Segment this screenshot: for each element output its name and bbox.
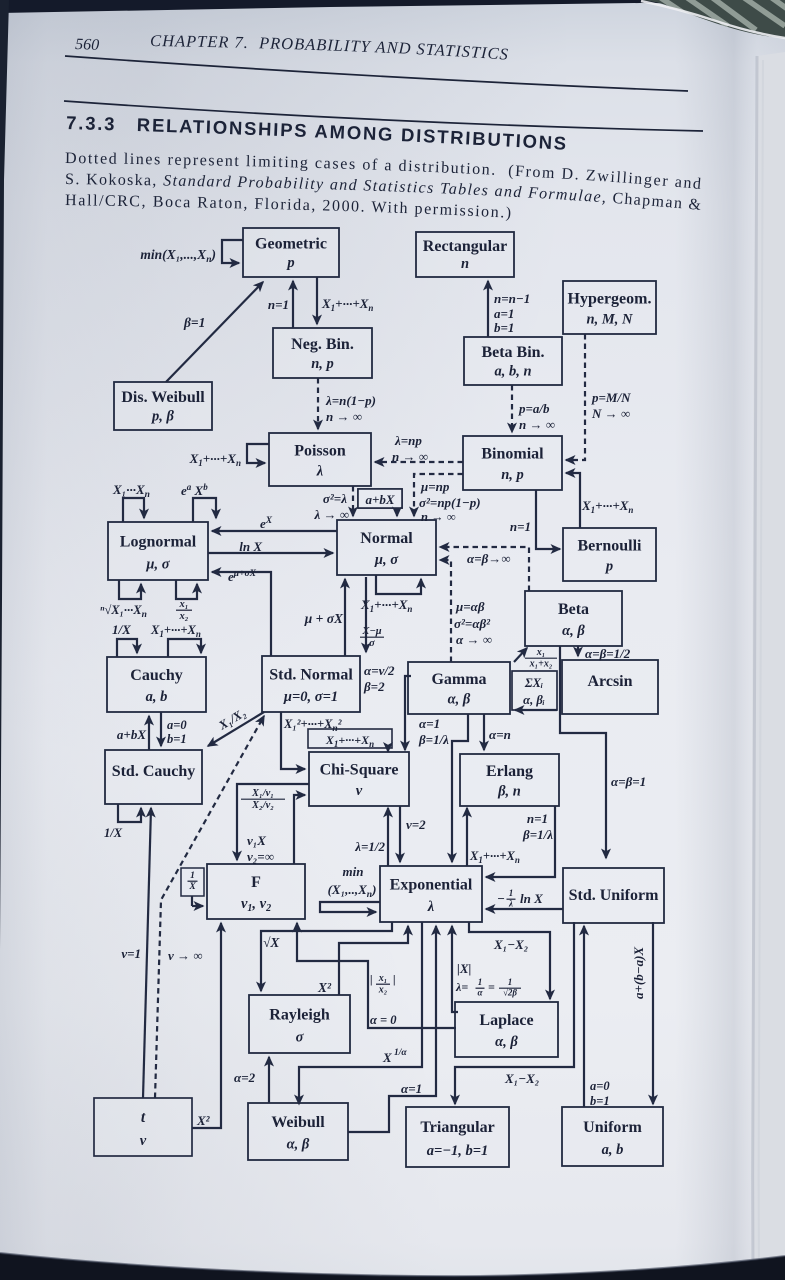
svg-text:β, n: β, n: [497, 784, 521, 800]
svg-text:α, β: α, β: [287, 1137, 310, 1153]
svg-text:|: |: [393, 972, 396, 986]
svg-text:n → ∞: n → ∞: [326, 409, 362, 424]
svg-text:|: |: [370, 972, 373, 986]
svg-text:ν=2: ν=2: [406, 817, 426, 832]
svg-text:p: p: [604, 558, 613, 574]
svg-text:Hypergeom.: Hypergeom.: [568, 290, 652, 307]
svg-text:X: X: [382, 1050, 392, 1065]
svg-text:−: −: [497, 891, 505, 906]
svg-text:μ, σ: μ, σ: [374, 552, 399, 568]
svg-text:X1+···+Xn: X1+···+Xn: [189, 451, 241, 468]
svg-text:μ=0, σ=1: μ=0, σ=1: [283, 689, 338, 705]
svg-text:a, b, n: a, b, n: [494, 363, 531, 379]
svg-text:Dis. Weibull: Dis. Weibull: [121, 389, 205, 406]
svg-text:μ, σ: μ, σ: [145, 556, 170, 572]
svg-text:x₁: x₁: [179, 599, 189, 610]
svg-text:Rectangular: Rectangular: [423, 238, 507, 255]
svg-text:X−μ: X−μ: [361, 626, 381, 637]
svg-text:ν: ν: [356, 783, 363, 799]
svg-text:n=1: n=1: [527, 811, 548, 826]
svg-text:n → ∞: n → ∞: [392, 449, 428, 464]
svg-text:μ + σX: μ + σX: [304, 611, 344, 626]
svg-text:b=1: b=1: [590, 1094, 610, 1108]
svg-text:√2β: √2β: [503, 988, 517, 998]
svg-text:σ²=αβ²: σ²=αβ²: [454, 616, 491, 631]
svg-text:b=1: b=1: [494, 320, 514, 335]
svg-text:Triangular: Triangular: [420, 1119, 494, 1136]
svg-text:ν=1: ν=1: [121, 946, 141, 961]
svg-text:X²: X²: [317, 980, 332, 995]
svg-text:α → ∞: α → ∞: [456, 632, 492, 647]
svg-text:1/X: 1/X: [104, 826, 123, 840]
svg-text:ν → ∞: ν → ∞: [168, 948, 203, 963]
svg-text:a+bX: a+bX: [365, 492, 394, 507]
svg-text:β=1: β=1: [183, 315, 205, 330]
svg-text:b=1: b=1: [167, 732, 187, 746]
svg-text:1: 1: [478, 977, 483, 987]
svg-text:Lognormal: Lognormal: [120, 533, 197, 550]
svg-text:n, p: n, p: [311, 356, 334, 372]
svg-text:ln X: ln X: [239, 539, 262, 554]
svg-text:X₁···Xn: X₁···Xn: [112, 482, 150, 500]
svg-text:μ=np: μ=np: [420, 479, 450, 494]
svg-text:X1+···+Xn: X1+···+Xn: [150, 623, 201, 639]
svg-text:a+(b−a)X: a+(b−a)X: [631, 947, 646, 999]
svg-text:α=n: α=n: [489, 727, 511, 742]
svg-text:X₁−X₂: X₁−X₂: [493, 937, 528, 952]
svg-text:ln X: ln X: [520, 891, 543, 906]
svg-text:α=β=1/2: α=β=1/2: [585, 646, 631, 661]
svg-text:ν₁X: ν₁X: [247, 833, 266, 848]
svg-text:n: n: [461, 256, 469, 272]
svg-text:σ²=np(1−p): σ²=np(1−p): [419, 495, 481, 510]
svg-text:F: F: [251, 874, 261, 891]
svg-text:Exponential: Exponential: [390, 877, 473, 894]
svg-text:1: 1: [190, 871, 195, 881]
svg-text:min(X₁,...,Xn): min(X₁,...,Xn): [140, 247, 216, 265]
svg-text:λ=1/2: λ=1/2: [354, 839, 385, 854]
svg-text:Std. Cauchy: Std. Cauchy: [112, 763, 196, 780]
svg-text:ΣXᵢ: ΣXᵢ: [524, 676, 543, 690]
svg-text:t: t: [141, 1109, 146, 1126]
svg-text:X1+···+Xn: X1+···+Xn: [321, 296, 373, 313]
svg-text:α=ν/2: α=ν/2: [364, 663, 395, 678]
svg-text:N → ∞: N → ∞: [591, 406, 630, 421]
svg-text:x₁: x₁: [536, 647, 546, 658]
svg-text:Binomial: Binomial: [481, 446, 544, 463]
svg-text:λ=np: λ=np: [394, 433, 422, 448]
svg-text:Cauchy: Cauchy: [130, 667, 182, 684]
svg-text:p=a/b: p=a/b: [518, 401, 550, 416]
svg-text:x₂: x₂: [378, 984, 388, 995]
svg-text:α, βᵢ: α, βᵢ: [523, 693, 545, 707]
svg-text:Laplace: Laplace: [479, 1012, 533, 1029]
svg-text:1/X: 1/X: [112, 622, 131, 637]
svg-text:Geometric: Geometric: [255, 236, 327, 253]
svg-text:α, β: α, β: [562, 623, 585, 639]
svg-text:β=2: β=2: [363, 679, 385, 694]
svg-text:X1+···+Xn: X1+···+Xn: [325, 733, 374, 749]
svg-text:Uniform: Uniform: [583, 1119, 642, 1136]
svg-text:min: min: [343, 864, 364, 879]
svg-text:α=1: α=1: [401, 1081, 422, 1096]
svg-text:Arcsin: Arcsin: [587, 673, 632, 690]
svg-text:a=−1, b=1: a=−1, b=1: [427, 1143, 489, 1159]
svg-text:a=0: a=0: [590, 1079, 610, 1093]
svg-text:n=1: n=1: [510, 519, 531, 534]
svg-text:Std. Uniform: Std. Uniform: [569, 887, 659, 904]
svg-text:μ=αβ: μ=αβ: [455, 599, 485, 614]
svg-text:n=n−1: n=n−1: [494, 291, 530, 306]
svg-text:Poisson: Poisson: [294, 442, 346, 459]
svg-text:X: X: [188, 882, 196, 892]
svg-text:Std. Normal: Std. Normal: [269, 667, 353, 684]
svg-text:n → ∞: n → ∞: [519, 417, 555, 432]
svg-text:X₁/ν₁: X₁/ν₁: [251, 788, 274, 799]
svg-text:λ: λ: [316, 463, 324, 479]
svg-text:1: 1: [508, 977, 513, 987]
svg-text:|X|: |X|: [457, 961, 471, 976]
svg-text:Bernoulli: Bernoulli: [577, 537, 642, 554]
svg-text:n → ∞: n → ∞: [421, 510, 456, 524]
svg-text:α=2: α=2: [234, 1070, 256, 1085]
svg-text:α = 0: α = 0: [370, 1013, 397, 1027]
svg-text:α=β=1: α=β=1: [611, 774, 646, 789]
svg-text:n, p: n, p: [501, 467, 524, 483]
svg-text:α=1: α=1: [419, 716, 440, 731]
svg-text:n, M, N: n, M, N: [587, 311, 633, 327]
svg-text:X²: X²: [196, 1113, 211, 1128]
svg-text:Neg. Bin.: Neg. Bin.: [291, 336, 354, 353]
svg-text:x₁+x₂: x₁+x₂: [529, 658, 553, 669]
svg-text:x₂: x₂: [179, 611, 189, 622]
svg-text:1: 1: [509, 888, 514, 898]
svg-text:p, β: p, β: [150, 408, 175, 424]
svg-text:λ → ∞: λ → ∞: [313, 507, 349, 522]
svg-text:p=M/N: p=M/N: [591, 390, 631, 405]
svg-text:a=0: a=0: [167, 718, 187, 732]
svg-text:β=1/λ: β=1/λ: [522, 827, 553, 842]
svg-text:ν: ν: [140, 1133, 147, 1149]
svg-text:p: p: [285, 255, 294, 271]
svg-text:Normal: Normal: [360, 530, 413, 547]
svg-text:=: =: [488, 980, 495, 994]
svg-text:X₁−X₂: X₁−X₂: [504, 1071, 539, 1086]
svg-text:λ=n(1−p): λ=n(1−p): [325, 393, 376, 408]
svg-text:Beta: Beta: [558, 601, 589, 618]
svg-text:X1+···+Xn: X1+···+Xn: [469, 849, 520, 865]
svg-text:α, β: α, β: [448, 692, 471, 708]
svg-text:a+bX: a+bX: [117, 727, 146, 742]
svg-text:n=1: n=1: [268, 297, 289, 312]
svg-text:Rayleigh: Rayleigh: [269, 1006, 330, 1023]
svg-text:ν₂=∞: ν₂=∞: [247, 849, 274, 864]
svg-text:a=1: a=1: [494, 306, 514, 321]
svg-text:a, b: a, b: [146, 689, 168, 705]
svg-text:Beta Bin.: Beta Bin.: [481, 344, 544, 361]
svg-text:560: 560: [75, 36, 100, 54]
svg-text:Erlang: Erlang: [486, 763, 533, 780]
svg-text:X1+···+Xn: X1+···+Xn: [581, 498, 633, 515]
svg-text:σ²=λ: σ²=λ: [323, 491, 347, 506]
svg-text:λ=: λ=: [455, 980, 468, 994]
svg-text:λ: λ: [508, 899, 513, 909]
svg-text:α, β: α, β: [495, 1034, 518, 1050]
svg-text:α=β→∞: α=β→∞: [467, 551, 511, 566]
svg-text:1/α: 1/α: [394, 1048, 407, 1058]
svg-text:a, b: a, b: [602, 1142, 624, 1158]
svg-text:x₁: x₁: [378, 973, 388, 984]
svg-text:σ: σ: [296, 1029, 305, 1045]
svg-text:Gamma: Gamma: [431, 671, 486, 688]
svg-text:λ: λ: [427, 899, 435, 915]
svg-text:σ: σ: [369, 638, 375, 649]
svg-text:√X: √X: [263, 935, 280, 950]
svg-text:X1+···+Xn: X1+···+Xn: [360, 597, 412, 614]
svg-text:X₂/ν₂: X₂/ν₂: [251, 800, 274, 811]
svg-text:β=1/λ: β=1/λ: [418, 732, 449, 747]
svg-text:Weibull: Weibull: [271, 1114, 325, 1131]
svg-text:Chi-Square: Chi-Square: [320, 762, 399, 779]
